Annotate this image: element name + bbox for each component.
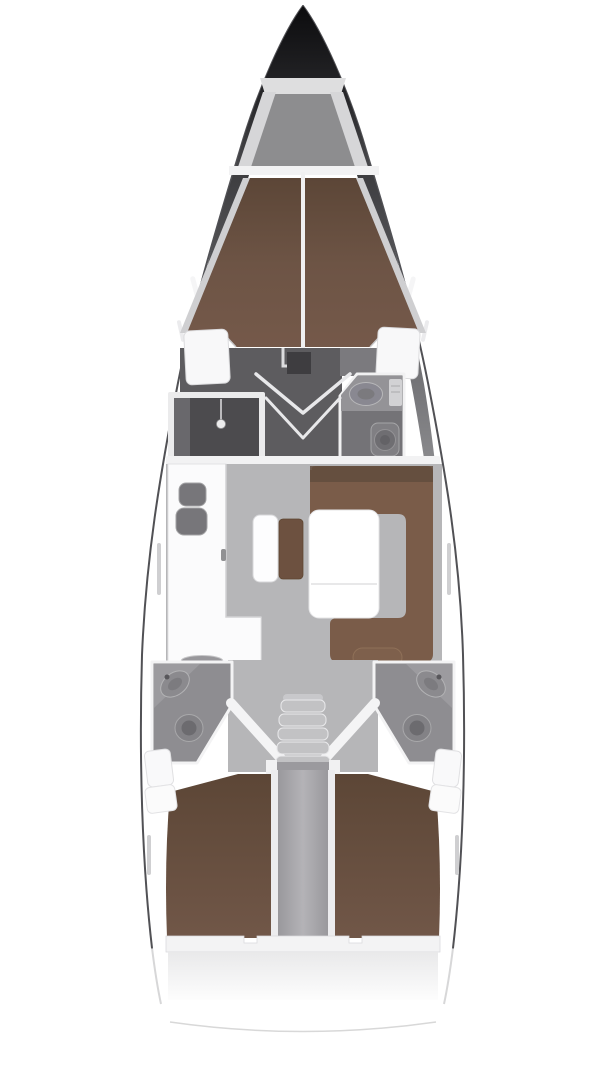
stair-step-3 xyxy=(278,728,328,740)
partition-wall-starboard xyxy=(328,770,335,942)
aft-window-starboard xyxy=(455,835,459,875)
berth-center-line xyxy=(301,172,305,348)
salon-window-starboard xyxy=(447,543,451,595)
aft-heads-port-tap xyxy=(165,675,170,680)
settee-backrest-strip xyxy=(310,466,433,482)
yacht-floor-plan-diagram xyxy=(0,0,608,1080)
aft-toilet-starboard-bowl xyxy=(410,721,425,736)
aft-window-port xyxy=(147,835,151,875)
aft-heads-starboard-tap xyxy=(437,675,442,680)
table-top xyxy=(309,510,379,618)
stern-bulkhead xyxy=(166,936,440,952)
nav-bench xyxy=(253,515,278,582)
shower-head-icon xyxy=(217,420,226,429)
stair-step-4 xyxy=(277,742,329,754)
aft-cabins xyxy=(144,770,461,1000)
wardrobe-locker-port xyxy=(184,329,231,385)
galley-sink-2 xyxy=(176,508,207,535)
floor-plan-canvas xyxy=(0,0,608,1080)
forward-toilet-bowl-inner xyxy=(380,435,390,445)
shower-room xyxy=(168,392,265,464)
galley-handle xyxy=(221,549,226,561)
nav-ottoman xyxy=(279,519,303,579)
stair-step-2 xyxy=(279,714,326,726)
forward-cabin xyxy=(180,172,426,348)
transom-curve xyxy=(170,1022,436,1032)
salon-window-port xyxy=(157,543,161,595)
side-locker-starboard xyxy=(432,749,462,788)
aft-locker-port xyxy=(144,784,177,814)
wardrobe-locker-starboard xyxy=(376,327,421,379)
salon-table xyxy=(309,510,379,618)
shower-side-panel xyxy=(174,398,190,458)
anchor-locker-top-bar xyxy=(260,78,346,94)
side-locker-port xyxy=(144,749,174,788)
partition-wall-port xyxy=(271,770,278,942)
forward-heads xyxy=(340,374,404,462)
aft-berth-starboard xyxy=(333,774,440,938)
door-leaf xyxy=(287,352,311,374)
stair-step-1 xyxy=(281,700,325,712)
aft-locker-starboard xyxy=(428,784,461,814)
aft-toilet-port-bowl xyxy=(182,721,197,736)
stern-interior xyxy=(168,952,438,1000)
engine-partition xyxy=(277,770,329,942)
galley-sink-1 xyxy=(179,483,206,506)
forward-heads-sink-basin xyxy=(358,389,375,400)
aft-berth-port xyxy=(166,774,273,938)
salon xyxy=(157,456,451,670)
